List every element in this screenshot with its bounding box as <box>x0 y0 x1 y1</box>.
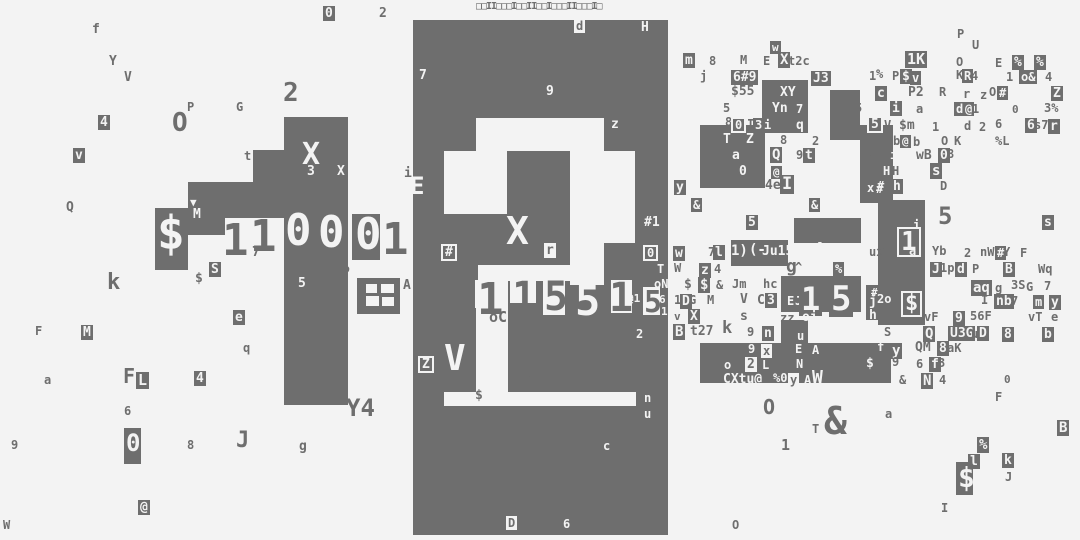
glyph: P <box>342 266 350 279</box>
glyph: 4 <box>714 263 721 275</box>
glyph: T <box>812 423 819 435</box>
glyph: 6 <box>124 405 131 417</box>
glyph: %0 <box>773 372 787 384</box>
glyph: @ <box>138 500 150 515</box>
glyph: H <box>892 165 899 177</box>
glyph: S <box>209 262 221 277</box>
glyph: 6#9 <box>731 70 758 85</box>
glyph: J3 <box>811 71 831 86</box>
glyph: 1) <box>731 244 748 258</box>
glyph: 3 <box>307 165 315 178</box>
glyph: 1 <box>779 437 792 454</box>
glyph: s <box>738 309 750 324</box>
glyph: $ <box>157 210 185 256</box>
glyph: Z <box>1051 86 1063 101</box>
light-block <box>366 296 379 306</box>
glyph: V <box>444 341 466 377</box>
glyph: 5 <box>855 102 862 114</box>
glyph: B <box>1003 262 1015 277</box>
glyph: v <box>674 311 681 322</box>
glyph: K <box>954 135 961 147</box>
glyph: 7 <box>796 103 803 115</box>
glyph: 4 <box>98 115 110 130</box>
glyph: g <box>299 440 307 453</box>
glyph: $m <box>899 119 915 132</box>
glyph: e <box>233 310 245 325</box>
glyph: 5 <box>829 281 853 317</box>
glyph: 4 <box>194 371 206 386</box>
glyph: e <box>1051 311 1058 323</box>
glyph: x <box>877 245 884 257</box>
glyph: P <box>763 85 770 97</box>
glyph: % <box>876 68 883 80</box>
glyph: r <box>1048 119 1060 134</box>
glyph: F <box>1020 247 1027 259</box>
glyph: QM <box>915 341 931 354</box>
glyph: B <box>673 324 685 340</box>
glyph: f <box>877 341 884 353</box>
glyph: O <box>956 56 963 68</box>
glyph: U <box>868 148 875 160</box>
glyph: $ <box>698 277 710 293</box>
glyph: 8 <box>709 55 716 67</box>
glyph: t <box>244 150 251 162</box>
glyph: 2 <box>379 7 387 20</box>
glyph: h <box>869 309 877 322</box>
glyph: E <box>795 343 802 355</box>
glyph: n <box>762 326 774 341</box>
glyph: 1 <box>972 103 979 115</box>
glyph: V <box>738 292 750 307</box>
glyph: 5 <box>723 102 730 114</box>
glyph: # <box>997 86 1008 100</box>
glyph: c <box>875 86 887 101</box>
glyph: 7 <box>523 374 531 387</box>
glyph: $55 <box>731 85 754 98</box>
glyph: s7 <box>1034 119 1048 131</box>
glyph: 5 <box>867 116 883 133</box>
glyph: 5 <box>746 215 758 230</box>
glyph: m <box>683 53 695 68</box>
glyph: 0 <box>1004 374 1011 385</box>
glyph: z <box>611 118 619 131</box>
glyph: r <box>963 88 970 100</box>
glyph: vT <box>1028 311 1042 323</box>
glyph: V <box>124 71 132 84</box>
glyph: vF <box>924 311 938 323</box>
glyph: Z <box>418 356 434 373</box>
glyph: 9 <box>892 356 899 368</box>
glyph: J <box>236 430 249 452</box>
glyph: 9 <box>546 85 554 98</box>
glyph: 0 <box>731 117 746 133</box>
glyph: P <box>892 70 899 82</box>
glyph: 6 <box>659 294 666 305</box>
glyph: F <box>995 391 1002 403</box>
glyph: 8 <box>780 134 787 146</box>
glyph: R <box>939 86 946 98</box>
glyph: 4 <box>971 70 978 82</box>
glyph: w <box>673 246 685 261</box>
glyph: y <box>1049 295 1061 310</box>
glyph: Y <box>109 55 117 68</box>
glyph: Yb <box>932 245 946 257</box>
glyph: 2o <box>877 293 891 305</box>
glyph: S <box>884 326 891 338</box>
glyph: W <box>3 519 10 531</box>
glyph: #1 <box>644 216 660 229</box>
glyph: % <box>1034 55 1046 70</box>
glyph: k <box>1002 453 1014 468</box>
glyph: Wq <box>1038 263 1052 275</box>
glyph: D <box>940 180 947 192</box>
glyph: CXtu@ <box>723 373 762 386</box>
glyph: v <box>910 71 921 85</box>
glyph: k <box>107 272 120 294</box>
glyph: s <box>1042 215 1054 230</box>
glyph: & <box>899 374 906 386</box>
glyph: 5 <box>544 277 568 317</box>
glyph: P <box>187 101 194 113</box>
glyph: b <box>1042 327 1054 342</box>
glyph: T <box>657 263 664 275</box>
glyph: i <box>890 149 897 161</box>
glyph: Q <box>66 201 74 214</box>
glyph: 7 <box>252 246 260 259</box>
light-block <box>366 284 377 293</box>
glyph: 5 <box>298 277 306 290</box>
glyph-noise-canvas: □□II□□□I□□II□□I□□□II□□□I□ 02fYV2PGO4vtX3… <box>0 0 1080 540</box>
glyph: q <box>796 119 804 132</box>
glyph: r <box>544 243 556 258</box>
glyph: s <box>930 163 942 179</box>
glyph: 0 <box>318 211 345 255</box>
glyph: i <box>762 118 773 132</box>
glyph: A <box>812 344 819 356</box>
glyph: t <box>803 148 815 163</box>
glyph: 0 <box>355 213 382 257</box>
glyph: W <box>812 369 823 387</box>
glyph: c <box>603 440 610 452</box>
glyph: P <box>972 263 979 275</box>
glyph: $ <box>684 278 692 291</box>
glyph: 3% <box>1044 102 1058 114</box>
glyph: a <box>44 374 51 386</box>
glyph: h <box>891 179 903 194</box>
glyph: 0 <box>1012 104 1019 115</box>
glyph: 4 <box>812 240 824 260</box>
glyph: A <box>804 374 811 386</box>
glyph: $ <box>475 389 483 402</box>
glyph: oi <box>802 311 818 324</box>
glyph: M <box>193 208 201 221</box>
glyph: y <box>674 180 686 195</box>
glyph: 0 <box>126 431 140 455</box>
glyph: 2 <box>283 80 299 106</box>
glyph: 1 <box>382 218 409 262</box>
glyph: 1 <box>512 277 536 317</box>
glyph: d <box>964 120 971 132</box>
glyph: O <box>732 519 739 531</box>
glyph: E <box>763 55 770 67</box>
glyph: 9 <box>748 343 755 355</box>
glyph: 1 <box>661 306 668 317</box>
glyph: G <box>689 294 696 306</box>
glyph: 4 <box>1045 71 1052 83</box>
glyph: X <box>688 309 700 324</box>
glyph: E <box>995 57 1002 69</box>
glyph: 9 <box>747 326 754 338</box>
glyph: P <box>957 28 964 40</box>
glyph: CU <box>764 68 781 82</box>
glyph: 0 <box>643 245 658 261</box>
glyph: & <box>716 279 723 291</box>
glyph: hc <box>763 278 777 290</box>
glyph: 8 <box>187 439 194 451</box>
glyph: d <box>955 262 967 277</box>
glyph: $ <box>866 357 874 370</box>
glyph: 3 <box>765 293 777 308</box>
glyph: i <box>890 101 902 116</box>
glyph: 1p <box>940 262 954 274</box>
glyph: & <box>691 198 702 212</box>
light-block <box>570 151 635 243</box>
glyph: J <box>1005 471 1012 483</box>
glyph: 6 <box>916 358 923 370</box>
glyph: 2 <box>745 357 757 372</box>
glyph: $ <box>901 291 922 317</box>
glyph: E <box>787 295 794 307</box>
glyph: G <box>236 101 243 113</box>
glyph: I <box>981 294 988 306</box>
glyph: 8 <box>947 148 954 160</box>
glyph: z <box>980 89 987 101</box>
light-block <box>382 297 394 306</box>
glyph: Jm <box>732 278 746 290</box>
glyph: 6 <box>995 118 1002 130</box>
glyph: 0 <box>323 6 335 21</box>
glyph: aK <box>947 342 961 354</box>
glyph: v <box>73 148 85 163</box>
glyph: X <box>506 212 529 250</box>
glyph: o& <box>1019 70 1037 84</box>
glyph: 9 <box>953 311 965 326</box>
glyph: # <box>877 180 884 192</box>
glyph: w <box>770 41 781 54</box>
glyph: k <box>722 320 732 337</box>
glyph: G <box>1026 281 1033 293</box>
glyph: a <box>730 148 742 163</box>
glyph: nW <box>980 246 994 258</box>
glyph: t2c <box>788 55 810 67</box>
glyph: t27 <box>690 325 713 338</box>
glyph: V <box>884 119 891 131</box>
glyph: N <box>796 358 803 370</box>
glyph: % <box>833 262 844 276</box>
glyph: 0 <box>739 165 747 178</box>
glyph: M <box>740 54 747 66</box>
glyph: 2 <box>812 135 819 147</box>
glyph: T <box>723 133 731 146</box>
glyph: z <box>699 263 711 278</box>
glyph: 7 <box>1011 295 1018 307</box>
glyph: N <box>921 373 933 389</box>
glyph: 6 <box>563 518 570 530</box>
glyph: H <box>641 21 649 34</box>
glyph: 5 <box>575 280 600 322</box>
glyph: 8 <box>1002 327 1014 342</box>
glyph: 3 <box>938 357 945 369</box>
glyph: O <box>763 397 775 417</box>
glyph: A <box>403 279 411 292</box>
glyph: 1K <box>905 51 927 68</box>
glyph: 2 <box>979 121 986 133</box>
glyph: y <box>788 373 799 387</box>
glyph: o <box>724 359 731 371</box>
glyph: 9 <box>11 439 18 451</box>
glyph: # <box>441 244 457 261</box>
glyph: wB <box>916 149 932 162</box>
glyph: g <box>995 282 1002 294</box>
glyph: E <box>410 174 424 198</box>
glyph: 1 <box>1006 71 1013 83</box>
glyph: P2 <box>908 86 924 99</box>
light-block <box>381 284 394 293</box>
glyph: W <box>674 262 681 274</box>
glyph: a <box>885 408 892 420</box>
glyph: 7 <box>419 69 427 82</box>
glyph: ^ <box>795 261 802 273</box>
glyph: 1 <box>222 219 249 263</box>
glyph: O <box>172 110 188 136</box>
glyph: j <box>869 295 877 308</box>
top-sequence-text: □□II□□□I□□II□□I□□□II□□□I□ <box>476 2 602 12</box>
glyph: m <box>1033 295 1044 309</box>
glyph: %L <box>995 135 1009 147</box>
glyph: O <box>941 135 948 147</box>
glyph: Y <box>1003 246 1010 258</box>
dark-block <box>830 90 860 140</box>
glyph: O <box>989 86 996 98</box>
glyph: B <box>1057 420 1069 436</box>
glyph: l <box>713 245 725 260</box>
glyph: 7 <box>1044 280 1051 292</box>
glyph: u <box>797 330 804 342</box>
glyph: M <box>81 325 93 340</box>
glyph: F <box>123 366 135 386</box>
glyph: $ <box>958 464 975 492</box>
glyph: n <box>644 392 651 404</box>
glyph: zz <box>780 312 794 324</box>
glyph: X <box>337 165 345 178</box>
glyph: F <box>35 325 42 337</box>
glyph: 0 <box>285 209 312 253</box>
glyph: 3S <box>1011 279 1025 291</box>
glyph: Y4 <box>346 396 375 420</box>
glyph: oC <box>489 310 507 325</box>
glyph: I <box>941 502 948 514</box>
glyph: d <box>574 19 585 33</box>
light-block <box>444 392 636 406</box>
light-block <box>476 118 604 151</box>
glyph: 2 <box>636 328 643 340</box>
glyph: & <box>824 402 847 440</box>
glyph: M <box>707 294 714 306</box>
glyph: 5 <box>938 204 952 228</box>
glyph: x <box>761 344 772 358</box>
dark-block <box>794 218 861 243</box>
glyph: & <box>794 70 802 83</box>
glyph: 1 <box>932 121 939 133</box>
glyph: $ <box>195 272 203 285</box>
glyph: Yn <box>772 102 788 115</box>
glyph: Q <box>770 147 782 163</box>
glyph: U <box>972 39 979 51</box>
glyph: 56F <box>970 310 992 322</box>
glyph: 4e <box>765 179 781 192</box>
glyph: % <box>977 437 989 453</box>
glyph: b <box>913 136 920 148</box>
glyph: a <box>916 103 923 115</box>
glyph: I <box>780 175 794 194</box>
glyph: j <box>700 70 707 82</box>
glyph: a <box>909 245 916 257</box>
glyph: u <box>644 408 651 420</box>
glyph: f <box>92 23 100 36</box>
glyph: @1 <box>627 293 640 304</box>
glyph: & <box>809 198 820 212</box>
glyph: L <box>762 359 769 371</box>
glyph: @ <box>900 135 911 148</box>
glyph: % <box>1012 55 1024 70</box>
glyph: 4 <box>939 374 946 386</box>
glyph: q <box>243 342 250 354</box>
glyph: H <box>883 165 890 177</box>
light-block <box>444 151 507 214</box>
glyph: Z <box>746 133 754 146</box>
glyph: L <box>136 372 149 389</box>
glyph: D <box>506 516 517 530</box>
glyph: 2 <box>964 247 971 259</box>
glyph: D <box>977 326 989 341</box>
glyph: XY <box>780 86 796 99</box>
